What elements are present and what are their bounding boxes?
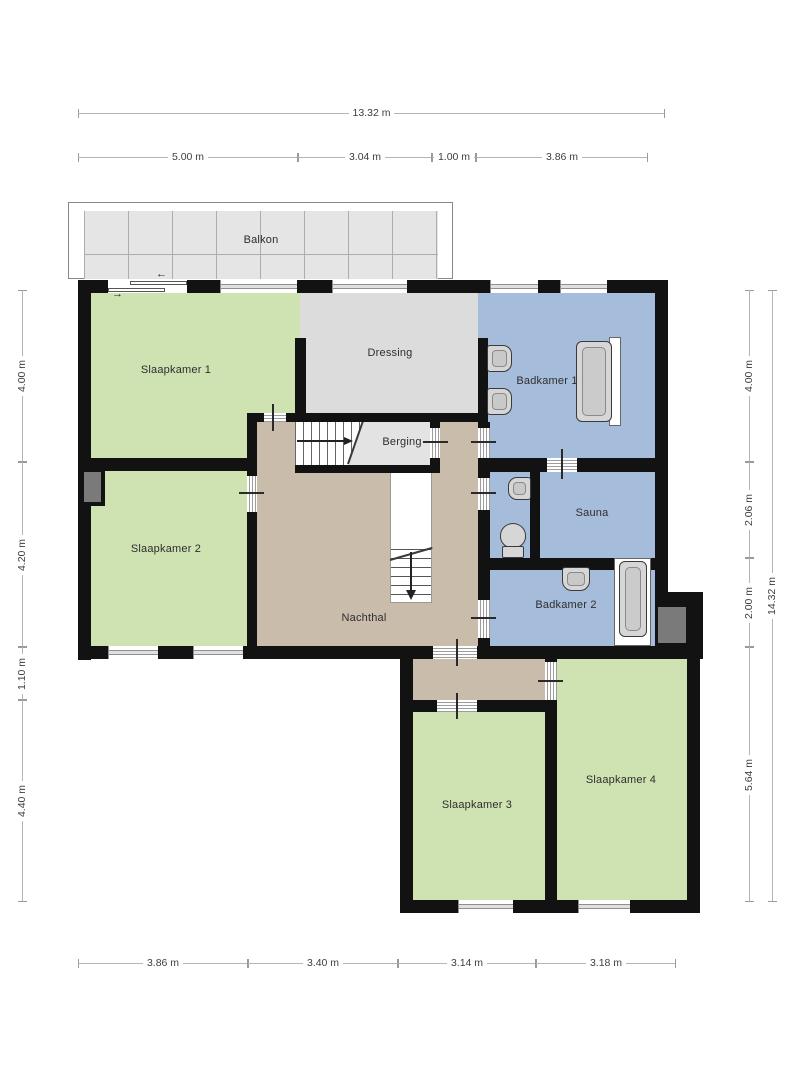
stair-down-arrowhead: [406, 590, 416, 600]
bathtub: [619, 561, 647, 637]
room-label-badkamer-2: Badkamer 2: [535, 599, 596, 611]
dimension-line: 4.00 m: [742, 290, 756, 462]
dimension-line: 5.00 m: [78, 150, 298, 164]
door-opening: [264, 413, 286, 422]
dimension-line: 2.00 m: [742, 558, 756, 647]
wall-segment: [247, 512, 257, 647]
wall-segment: [655, 280, 668, 592]
wall-segment: [400, 900, 458, 913]
dimension-label: 14.32 m: [766, 573, 778, 619]
stair-up-arrowhead: [344, 437, 353, 445]
wall-segment: [545, 646, 557, 662]
wall-segment: [478, 638, 490, 646]
wall-segment: [413, 700, 437, 712]
wall-segment: [430, 458, 440, 465]
window: [220, 280, 299, 293]
wall-segment: [257, 413, 264, 422]
wall-segment: [490, 458, 547, 472]
stair-down-arrow: [410, 552, 412, 592]
dimension-label: 4.20 m: [16, 534, 28, 574]
door-tick: [456, 693, 458, 719]
dimension-line: 4.00 m: [15, 290, 29, 462]
door-tick: [423, 441, 448, 443]
dimension-label: 4.00 m: [16, 356, 28, 396]
wall-segment: [400, 646, 413, 913]
door-tick: [538, 680, 563, 682]
room-slaapkamer-2: [91, 471, 247, 646]
wall-segment: [478, 570, 490, 600]
dimension-label: 13.32 m: [349, 107, 395, 119]
room-label-slaapkamer-2: Slaapkamer 2: [131, 543, 201, 555]
toilet-bowl: [500, 523, 526, 548]
wall-segment: [158, 646, 193, 659]
wall-segment: [577, 458, 655, 472]
dimension-line: 3.04 m: [298, 150, 432, 164]
room-slaapkamer-1: [91, 293, 300, 413]
dimension-label: 4.40 m: [16, 781, 28, 821]
door-tick: [239, 492, 264, 494]
dimension-line: 13.32 m: [78, 106, 665, 120]
door-tick: [471, 617, 496, 619]
dimension-line: 5.64 m: [742, 647, 756, 902]
dimension-label: 2.06 m: [743, 490, 755, 530]
door-opening: [478, 428, 490, 458]
toilet-tank: [502, 546, 524, 558]
window: [108, 646, 160, 659]
sink: [487, 345, 512, 372]
dimension-line: 3.86 m: [476, 150, 648, 164]
wall-segment: [530, 472, 540, 558]
wall-segment: [286, 413, 478, 422]
sliding-door-leaf: [130, 281, 187, 285]
dimension-label: 2.00 m: [743, 582, 755, 622]
door-tick: [456, 639, 458, 666]
floor-plan: ← → Balkon Slaapkamer 1 Dressing Badkame…: [0, 0, 810, 1080]
dimension-line: 1.00 m: [432, 150, 476, 164]
door-tick: [272, 404, 274, 431]
room-label-slaapkamer-4: Slaapkamer 4: [586, 774, 656, 786]
dimension-label: 3.04 m: [345, 151, 385, 163]
dimension-line: 1.10 m: [15, 647, 29, 700]
window: [332, 280, 409, 293]
dimension-label: 1.10 m: [16, 653, 28, 693]
door-tick: [471, 441, 496, 443]
wall-segment: [630, 900, 700, 913]
window: [490, 280, 540, 293]
room-corridor: [413, 659, 545, 700]
wall-segment: [478, 458, 490, 472]
wall-segment: [297, 280, 332, 293]
door-opening: [545, 662, 557, 702]
window: [193, 646, 245, 659]
dimension-label: 3.86 m: [542, 151, 582, 163]
room-label-balkon: Balkon: [244, 234, 279, 246]
room-label-berging: Berging: [382, 436, 421, 448]
door-opening: [478, 600, 490, 638]
wall-segment: [78, 646, 108, 659]
room-slaapkamer-1: [91, 413, 247, 458]
window: [578, 900, 632, 913]
dimension-line: 3.40 m: [248, 956, 398, 970]
dimension-line: 14.32 m: [765, 290, 779, 902]
stairwell-void: [390, 473, 432, 603]
dimension-label: 4.00 m: [743, 356, 755, 396]
dimension-label: 3.18 m: [586, 957, 626, 969]
dimension-label: 1.00 m: [434, 151, 474, 163]
door-tick: [561, 449, 563, 479]
dimension-label: 5.00 m: [168, 151, 208, 163]
wall-segment: [187, 280, 220, 293]
sink: [487, 388, 512, 415]
dimension-label: 3.14 m: [447, 957, 487, 969]
door-opening: [430, 428, 440, 458]
slider-arrow-left: ←: [156, 269, 167, 279]
wall-segment: [478, 510, 490, 558]
room-label-badkamer-1: Badkamer 1: [516, 375, 577, 387]
wall-segment: [295, 338, 306, 413]
wall-segment: [477, 646, 703, 659]
room-label-dressing: Dressing: [367, 347, 412, 359]
dimension-label: 3.40 m: [303, 957, 343, 969]
wall-segment: [687, 646, 700, 913]
door-opening: [478, 478, 490, 510]
dimension-line: 3.86 m: [78, 956, 248, 970]
door-opening: [247, 476, 257, 512]
room-label-sauna: Sauna: [576, 507, 609, 519]
wall-segment: [477, 700, 557, 712]
window: [458, 900, 515, 913]
dimension-label: 3.86 m: [143, 957, 183, 969]
window: [560, 280, 609, 293]
dimension-line: 4.20 m: [15, 462, 29, 647]
slider-arrow-right: →: [112, 289, 123, 299]
stair-up-arrow: [297, 440, 345, 442]
room-label-slaapkamer-1: Slaapkamer 1: [141, 364, 211, 376]
wall-segment: [407, 280, 490, 293]
sink: [508, 477, 531, 500]
wall-segment: [538, 280, 560, 293]
dimension-line: 2.06 m: [742, 462, 756, 558]
wall-segment: [545, 712, 557, 902]
door-opening: [433, 646, 477, 659]
dimension-line: 4.40 m: [15, 700, 29, 902]
dimension-line: 3.18 m: [536, 956, 676, 970]
dimension-line: 3.14 m: [398, 956, 536, 970]
sink: [562, 567, 590, 591]
bathtub: [576, 341, 612, 422]
door-tick: [471, 492, 496, 494]
room-label-nachthal: Nachthal: [341, 612, 386, 624]
room-label-slaapkamer-3: Slaapkamer 3: [442, 799, 512, 811]
dimension-label: 5.64 m: [743, 754, 755, 794]
wall-segment: [295, 465, 440, 473]
shaft: [658, 607, 686, 643]
chimney-flue: [84, 472, 101, 502]
